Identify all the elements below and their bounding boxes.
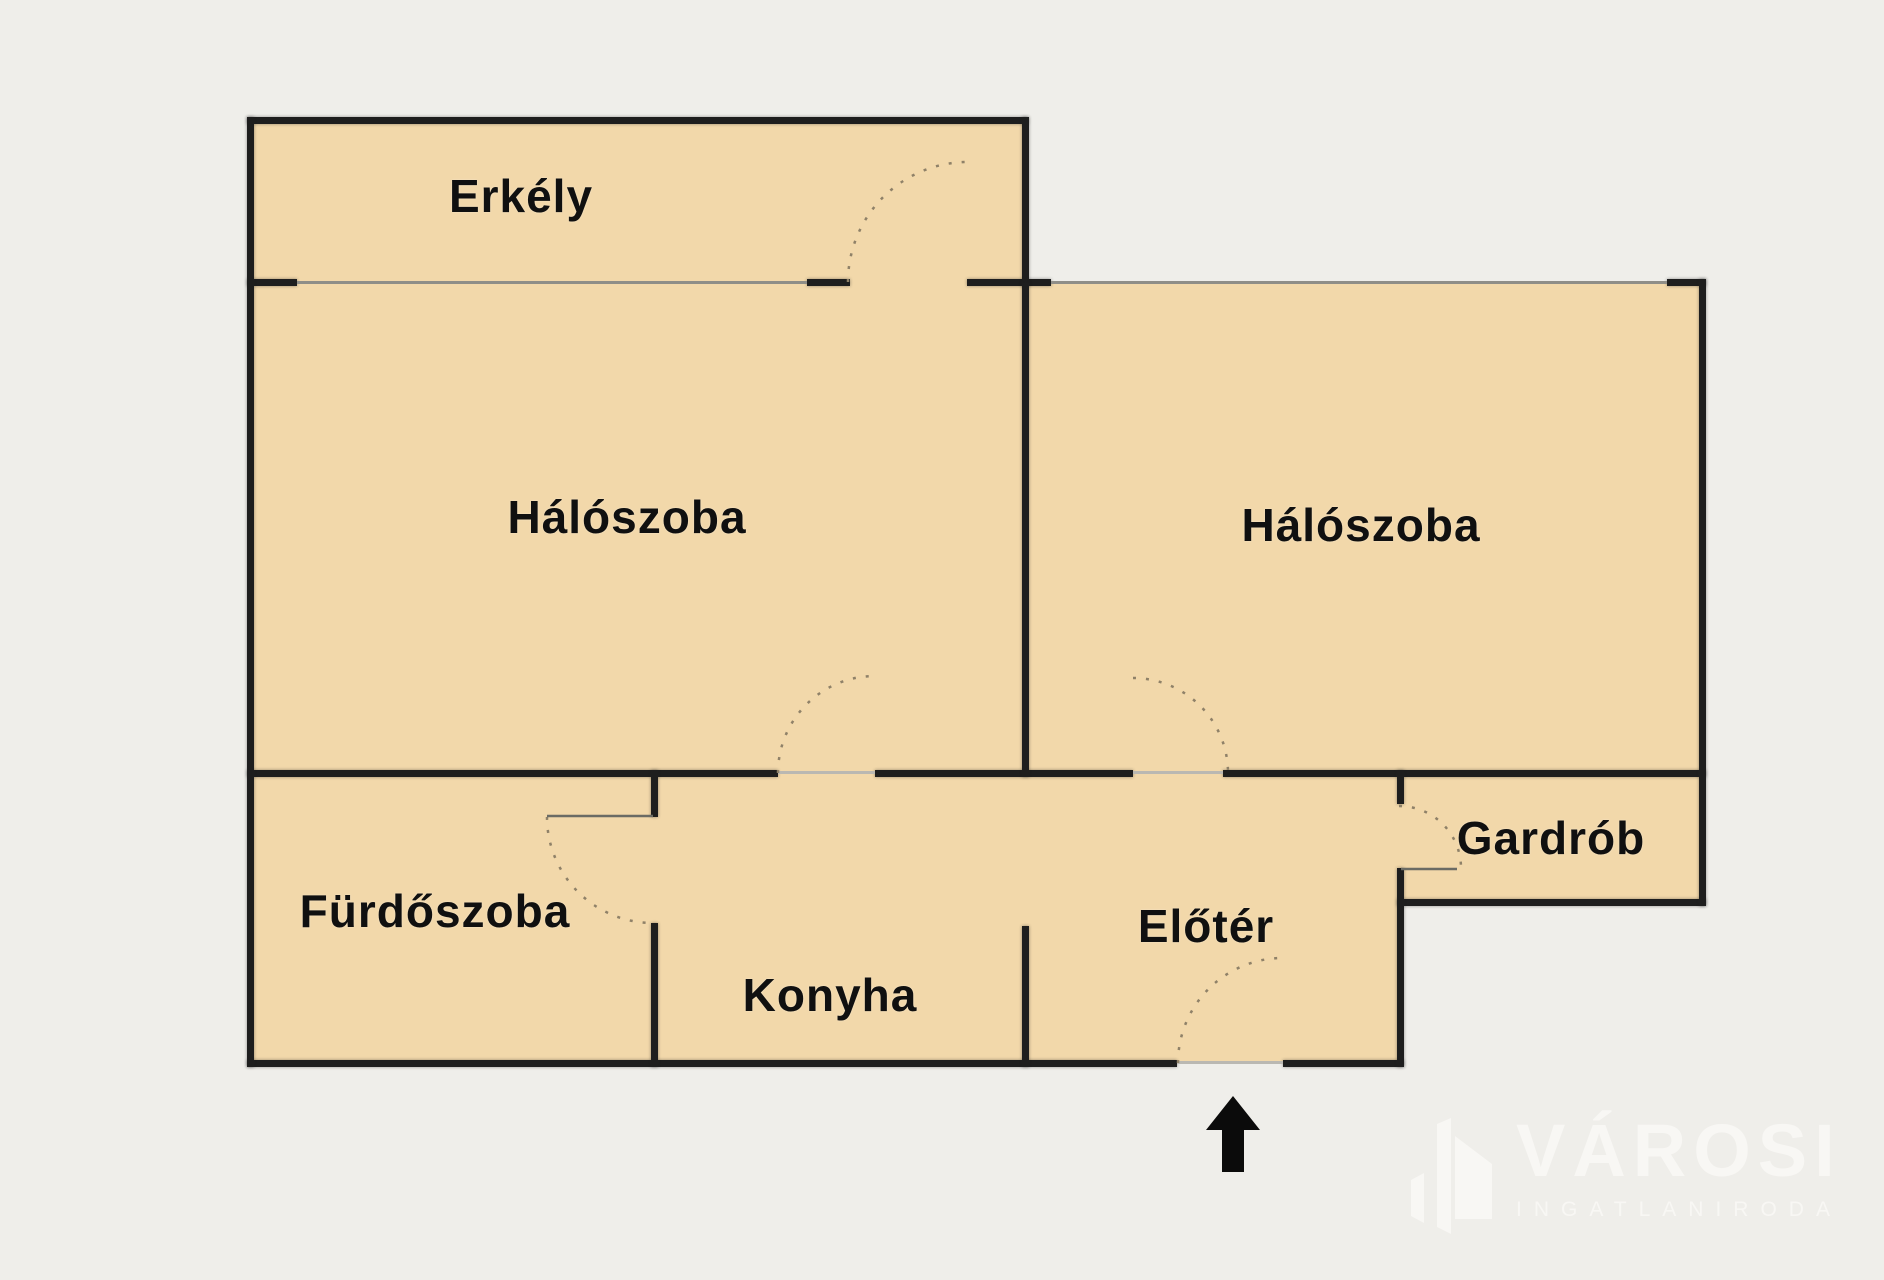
room-label-haloszoba-bal: Hálószoba [507, 490, 746, 544]
room-label-konyha: Konyha [743, 968, 918, 1022]
room-label-furdoszoba: Fürdőszoba [300, 884, 571, 938]
haloszoba-jobb-door-swing-arc [1133, 678, 1228, 773]
floorplan-canvas: ErkélyHálószobaHálószobaFürdőszobaKonyha… [0, 0, 1884, 1280]
bejarat-door-swing-arc [1178, 958, 1283, 1063]
door-swing-layer [0, 0, 1884, 1280]
brand-logo: VÁROSI INGATLANIRODA [1408, 1114, 1842, 1238]
logo-name: VÁROSI [1516, 1114, 1842, 1188]
logo-subtitle: INGATLANIRODA [1516, 1198, 1842, 1222]
varosi-building-icon [1408, 1114, 1496, 1238]
room-label-haloszoba-jobb: Hálószoba [1241, 498, 1480, 552]
erkely-door-swing-arc [848, 162, 968, 282]
logo-text-block: VÁROSI INGATLANIRODA [1516, 1114, 1842, 1222]
room-label-eloter: Előtér [1138, 899, 1274, 953]
room-label-gardrob: Gardrób [1457, 811, 1645, 865]
entrance-arrow [1206, 1096, 1260, 1172]
room-label-erkely: Erkély [449, 169, 593, 223]
haloszoba-bal-door-swing-arc [778, 676, 875, 773]
gardrob-door-swing-arc [1399, 806, 1461, 868]
